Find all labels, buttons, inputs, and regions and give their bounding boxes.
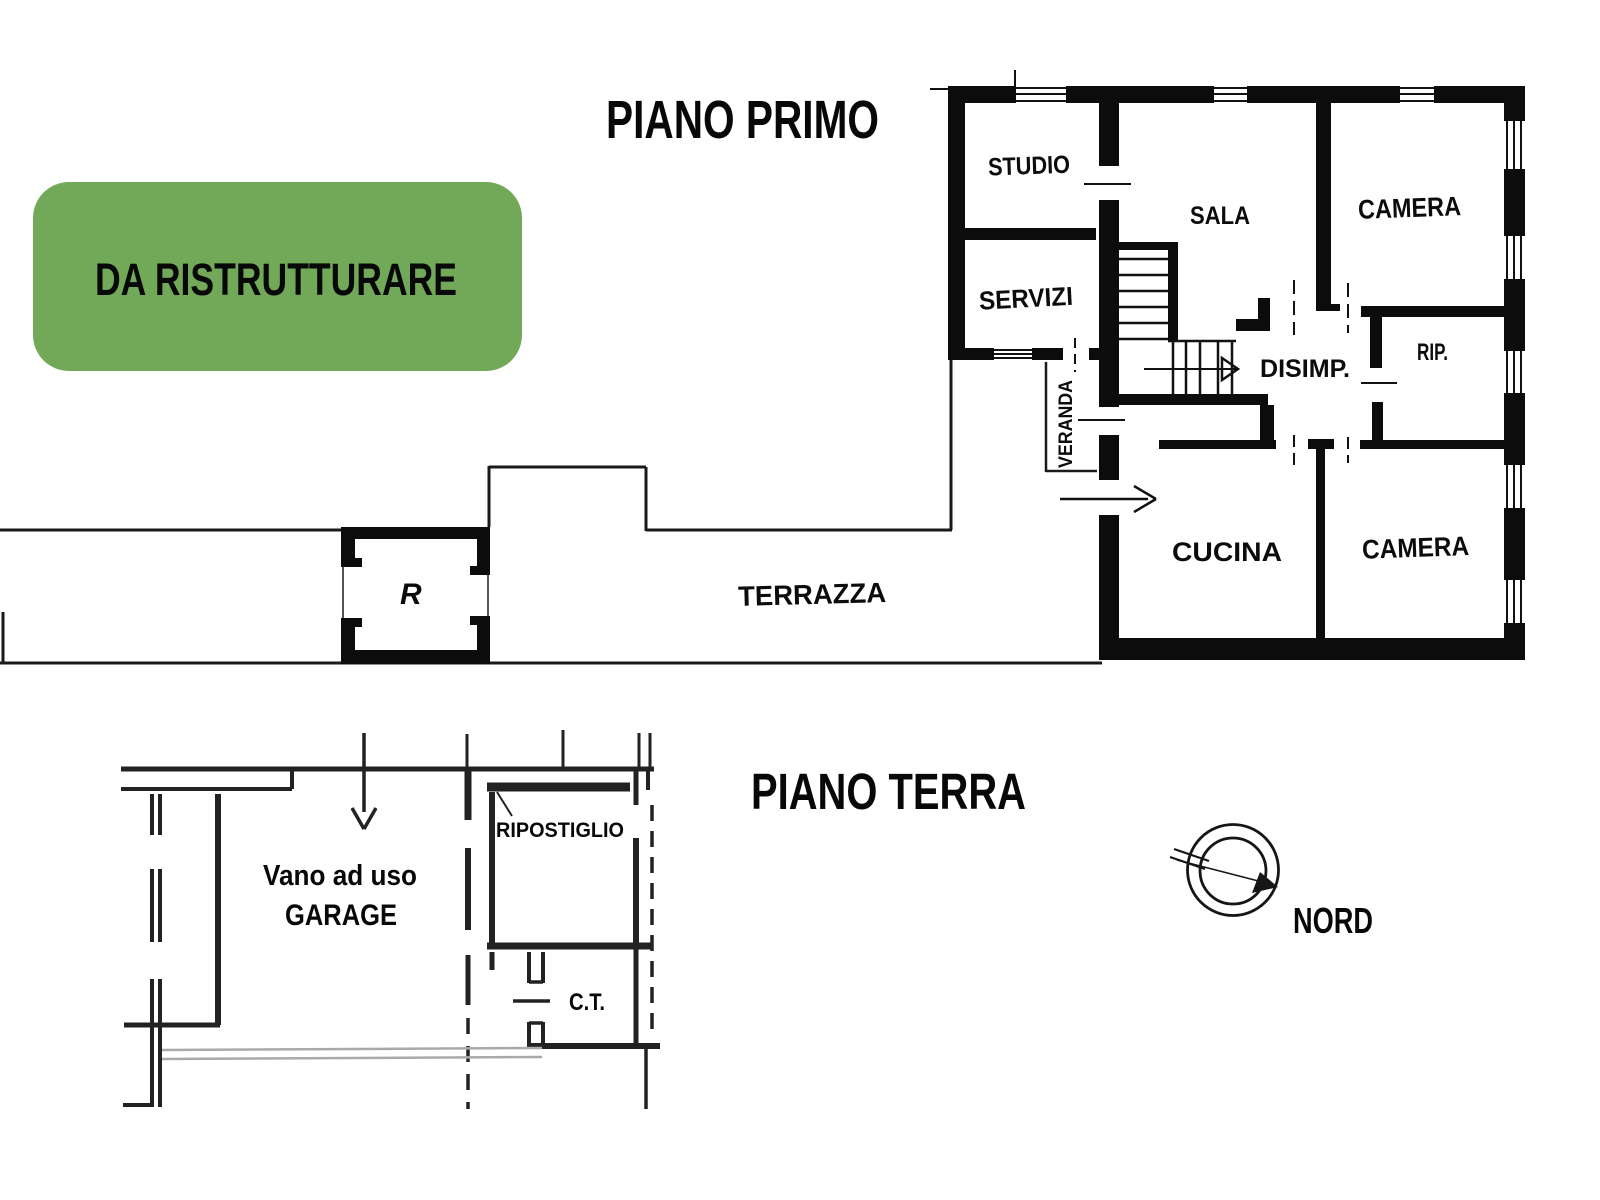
svg-text:Vano ad uso: Vano ad uso	[263, 860, 417, 892]
svg-text:CAMERA: CAMERA	[1358, 191, 1462, 225]
svg-text:SERVIZI: SERVIZI	[978, 281, 1073, 316]
svg-text:RIP.: RIP.	[1417, 339, 1448, 366]
svg-text:CAMERA: CAMERA	[1362, 531, 1470, 565]
svg-text:PIANO TERRA: PIANO TERRA	[751, 763, 1026, 820]
svg-text:DA RISTRUTTURARE: DA RISTRUTTURARE	[95, 254, 457, 305]
svg-text:GARAGE: GARAGE	[285, 899, 397, 932]
svg-text:RIPOSTIGLIO: RIPOSTIGLIO	[496, 819, 624, 842]
svg-text:R: R	[400, 578, 422, 611]
svg-text:DISIMP.: DISIMP.	[1260, 355, 1350, 383]
svg-text:TERRAZZA: TERRAZZA	[738, 577, 887, 612]
svg-text:PIANO PRIMO: PIANO PRIMO	[606, 90, 879, 150]
svg-text:VERANDA: VERANDA	[1056, 380, 1077, 468]
svg-text:NORD: NORD	[1293, 900, 1373, 941]
svg-text:STUDIO: STUDIO	[988, 151, 1071, 182]
svg-text:CUCINA: CUCINA	[1172, 537, 1282, 567]
svg-text:C.T.: C.T.	[569, 989, 605, 1016]
svg-text:SALA: SALA	[1190, 202, 1250, 230]
